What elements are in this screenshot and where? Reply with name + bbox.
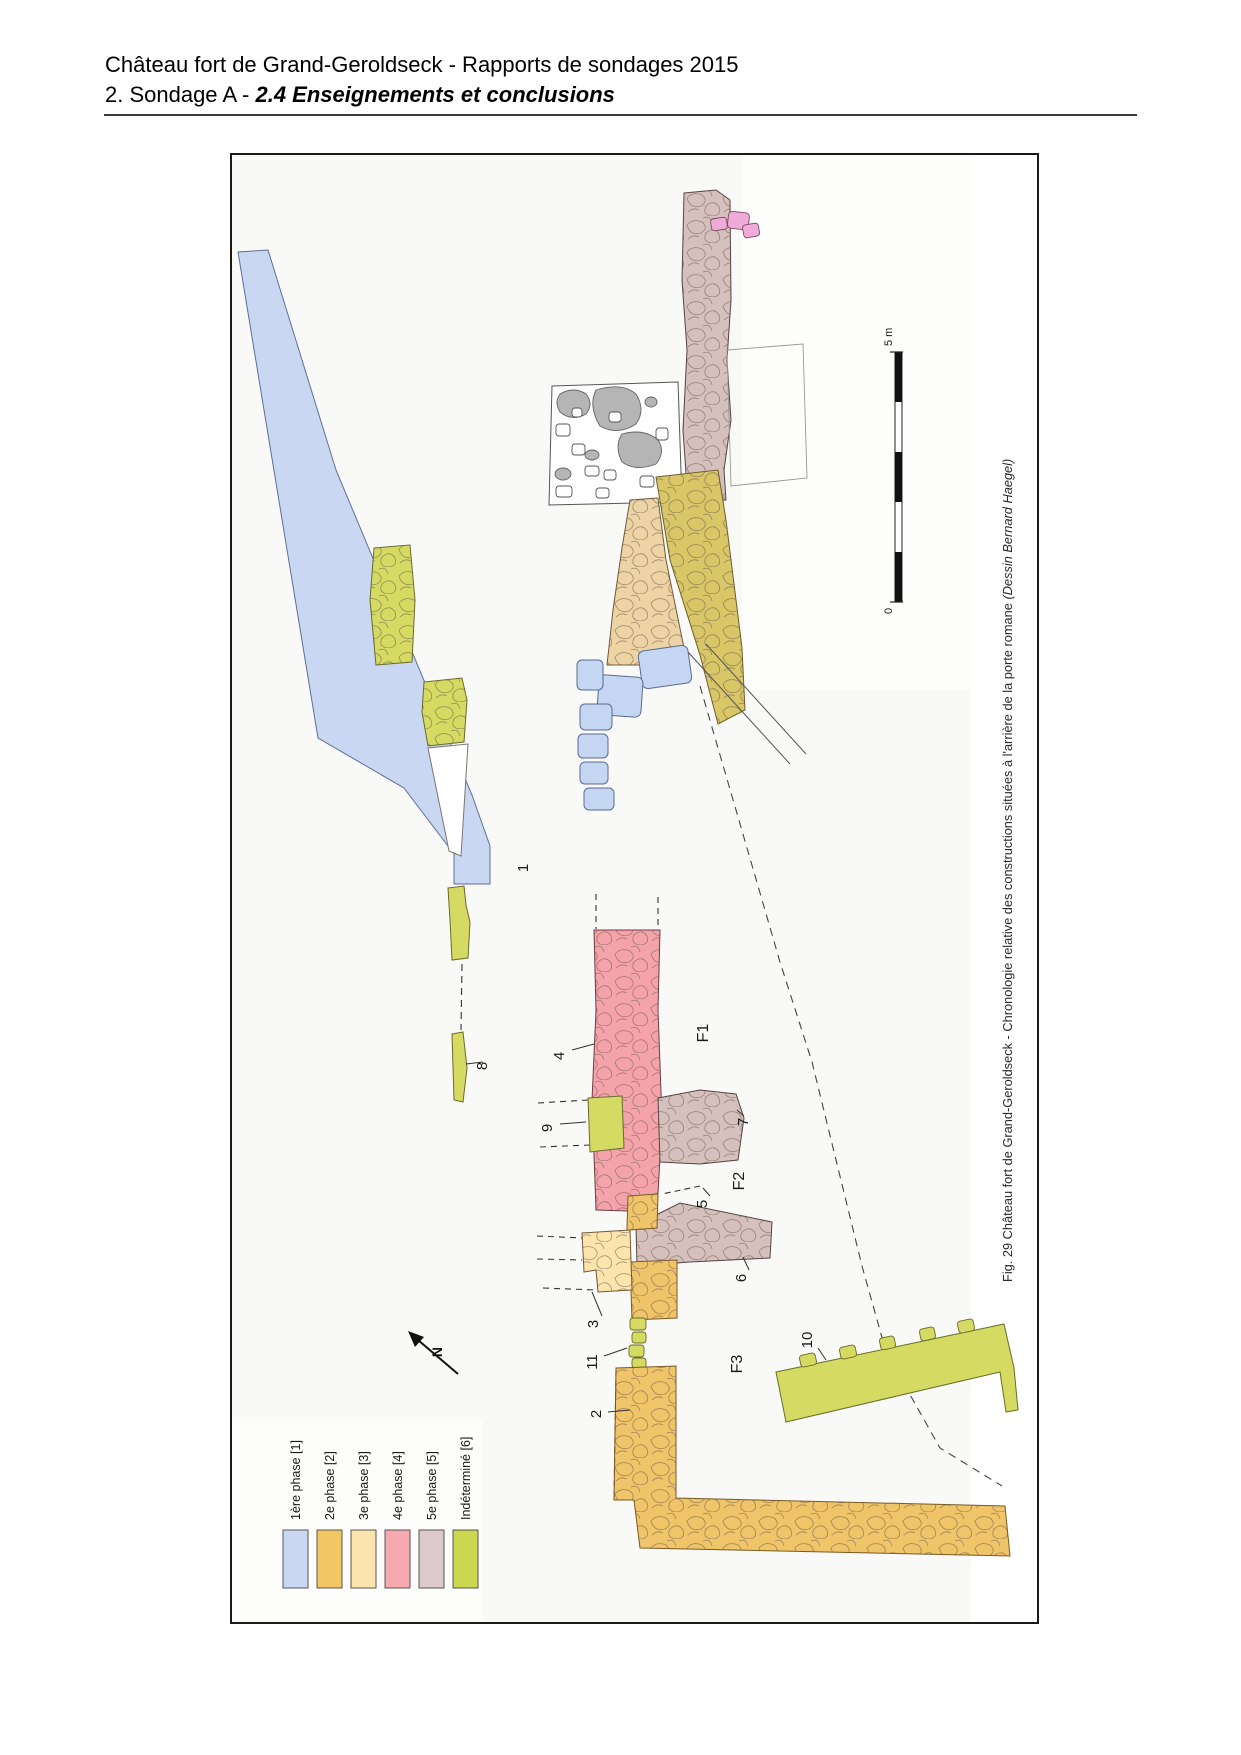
- plan-label-f3: F3: [729, 1355, 746, 1374]
- plan-label-6: 6: [733, 1274, 750, 1282]
- plan-label-4: 4: [551, 1052, 568, 1060]
- plan-label-7: 7: [735, 1118, 752, 1126]
- scale-bar-max-label: 5 m: [883, 328, 895, 346]
- phase6-box-9: [588, 1096, 624, 1152]
- document-page: Château fort de Grand-Geroldseck - Rappo…: [0, 0, 1241, 1755]
- legend-label-phase4: 4e phase [4]: [391, 1451, 405, 1520]
- legend-label-phase2: 2e phase [2]: [323, 1451, 337, 1520]
- legend-swatch-phase5: [419, 1530, 444, 1588]
- plan-label-f1: F1: [695, 1024, 712, 1043]
- legend-swatch-phase2: [317, 1530, 342, 1588]
- phase5-wall-7: [658, 1090, 744, 1164]
- plan-label-9: 9: [539, 1124, 556, 1132]
- plan-label-3: 3: [585, 1320, 602, 1328]
- figure-29-plan: 1 2 3 4 5 6 7 8 9 10 11 F1 F2 F3 N: [0, 0, 1241, 1755]
- phase5-long-wall-top: [682, 190, 731, 502]
- plan-label-5: 5: [694, 1200, 711, 1208]
- legend-label-phase3: 3e phase [3]: [357, 1451, 371, 1520]
- phase6-wall-fragment-upper: [370, 545, 415, 665]
- plan-label-8: 8: [474, 1062, 491, 1070]
- scan-light-patch-top: [742, 155, 971, 690]
- legend-swatch-phase3: [351, 1530, 376, 1588]
- legend-label-phase5: 5e phase [5]: [425, 1451, 439, 1520]
- plan-label-11: 11: [584, 1354, 601, 1370]
- plan-label-f2: F2: [731, 1172, 748, 1191]
- legend-label-phase1: 1ère phase [1]: [289, 1440, 303, 1520]
- north-arrow-label: N: [429, 1347, 445, 1357]
- plan-label-10: 10: [799, 1332, 816, 1349]
- legend-swatch-phase6: [453, 1530, 478, 1588]
- figure-caption: Fig. 29 Château fort de Grand-Geroldseck…: [1000, 459, 1015, 1282]
- legend-swatch-phase4: [385, 1530, 410, 1588]
- plan-label-1: 1: [515, 864, 532, 872]
- figure-caption-text: Fig. 29 Château fort de Grand-Geroldseck…: [1000, 600, 1015, 1282]
- legend-label-phase6: Indéterminé [6]: [459, 1437, 473, 1520]
- phase4-main-wall-4: [592, 930, 662, 1212]
- plan-label-2: 2: [588, 1410, 605, 1418]
- phase6-wall-fragment-mid: [422, 678, 467, 746]
- scale-bar-zero-label: 0: [883, 608, 895, 614]
- legend-swatch-phase1: [283, 1530, 308, 1588]
- figure-caption-credit: (Dessin Bernard Haegel): [1000, 459, 1015, 600]
